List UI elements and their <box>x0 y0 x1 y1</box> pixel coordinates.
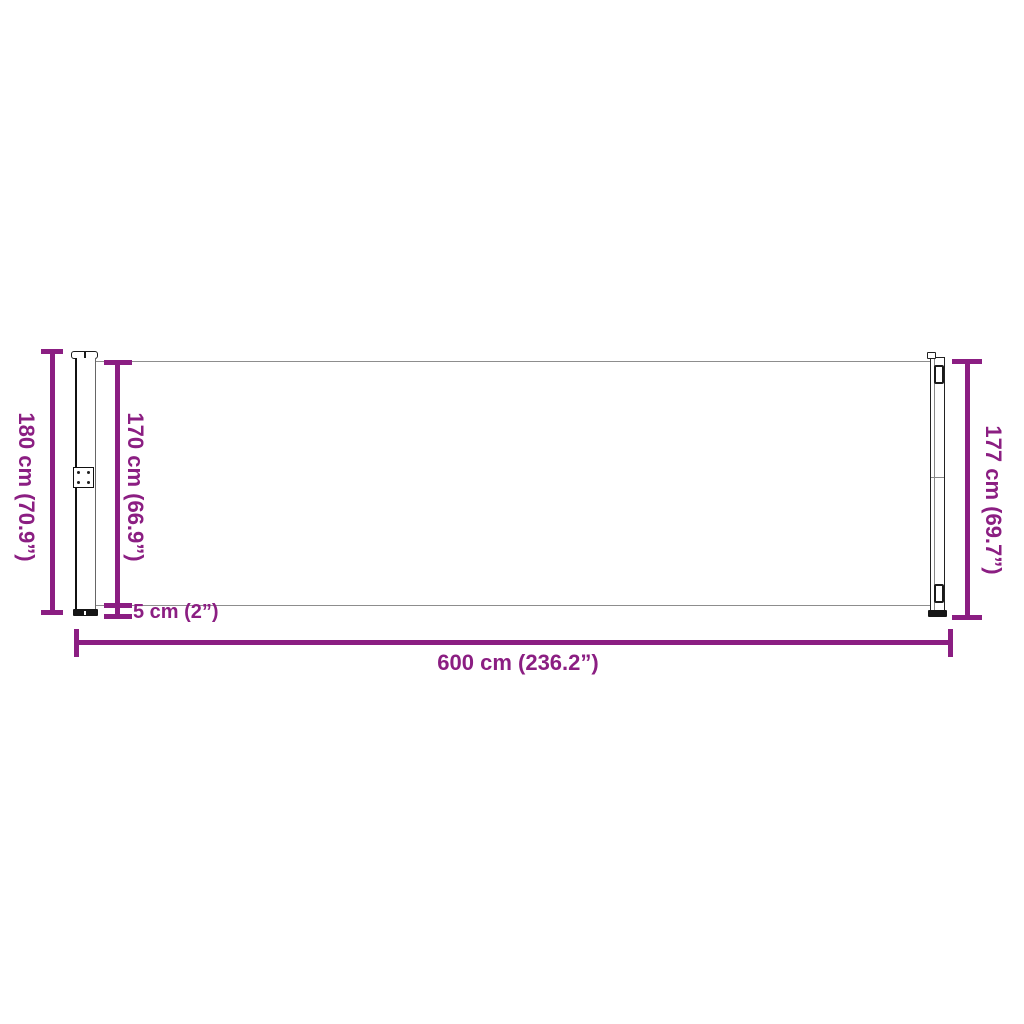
screw-hole <box>77 481 80 484</box>
product-dimension-diagram: 180 cm (70.9”) 170 cm (66.9”) 5 cm (2”) … <box>0 0 1024 1024</box>
dimension-total-width-line <box>76 640 951 645</box>
dimension-right-height-line <box>965 359 970 620</box>
dimension-gap-tick-bottom <box>104 614 132 619</box>
dimension-right-height-tick-bottom <box>952 615 982 620</box>
screw-hole <box>87 471 90 474</box>
cassette-foot <box>73 609 98 616</box>
end-post-handle-top <box>934 365 944 384</box>
dimension-total-height-tick-bottom <box>41 610 63 615</box>
awning-fabric-panel <box>96 361 930 606</box>
end-post-foot <box>928 610 947 617</box>
end-post-divider-line <box>931 477 944 478</box>
dimension-total-width-tick-right <box>948 629 953 657</box>
dimension-fabric-height-label: 170 cm (66.9”) <box>122 412 148 561</box>
dimension-fabric-height-line <box>115 360 120 619</box>
screw-hole <box>87 481 90 484</box>
dimension-right-height-tick-top <box>952 359 982 364</box>
end-post-slot-line <box>934 358 935 615</box>
dimension-total-height-tick-top <box>41 349 63 354</box>
screw-hole <box>77 471 80 474</box>
dimension-fabric-height-tick-bottom <box>104 603 132 608</box>
dimension-total-height-label: 180 cm (70.9”) <box>13 412 39 561</box>
dimension-gap-label: 5 cm (2”) <box>133 601 219 624</box>
dimension-total-width-label: 600 cm (236.2”) <box>318 650 718 676</box>
dimension-total-height-line <box>50 349 55 615</box>
end-post-top-tab <box>927 352 936 359</box>
foot-gap <box>84 611 86 615</box>
dimension-fabric-height-tick-top <box>104 360 132 365</box>
dimension-right-height-label: 177 cm (69.7”) <box>980 425 1006 574</box>
end-post-handle-bottom <box>934 584 944 603</box>
wall-bracket-plate <box>73 467 94 488</box>
dimension-total-width-tick-left <box>74 629 79 657</box>
end-post <box>930 357 945 616</box>
